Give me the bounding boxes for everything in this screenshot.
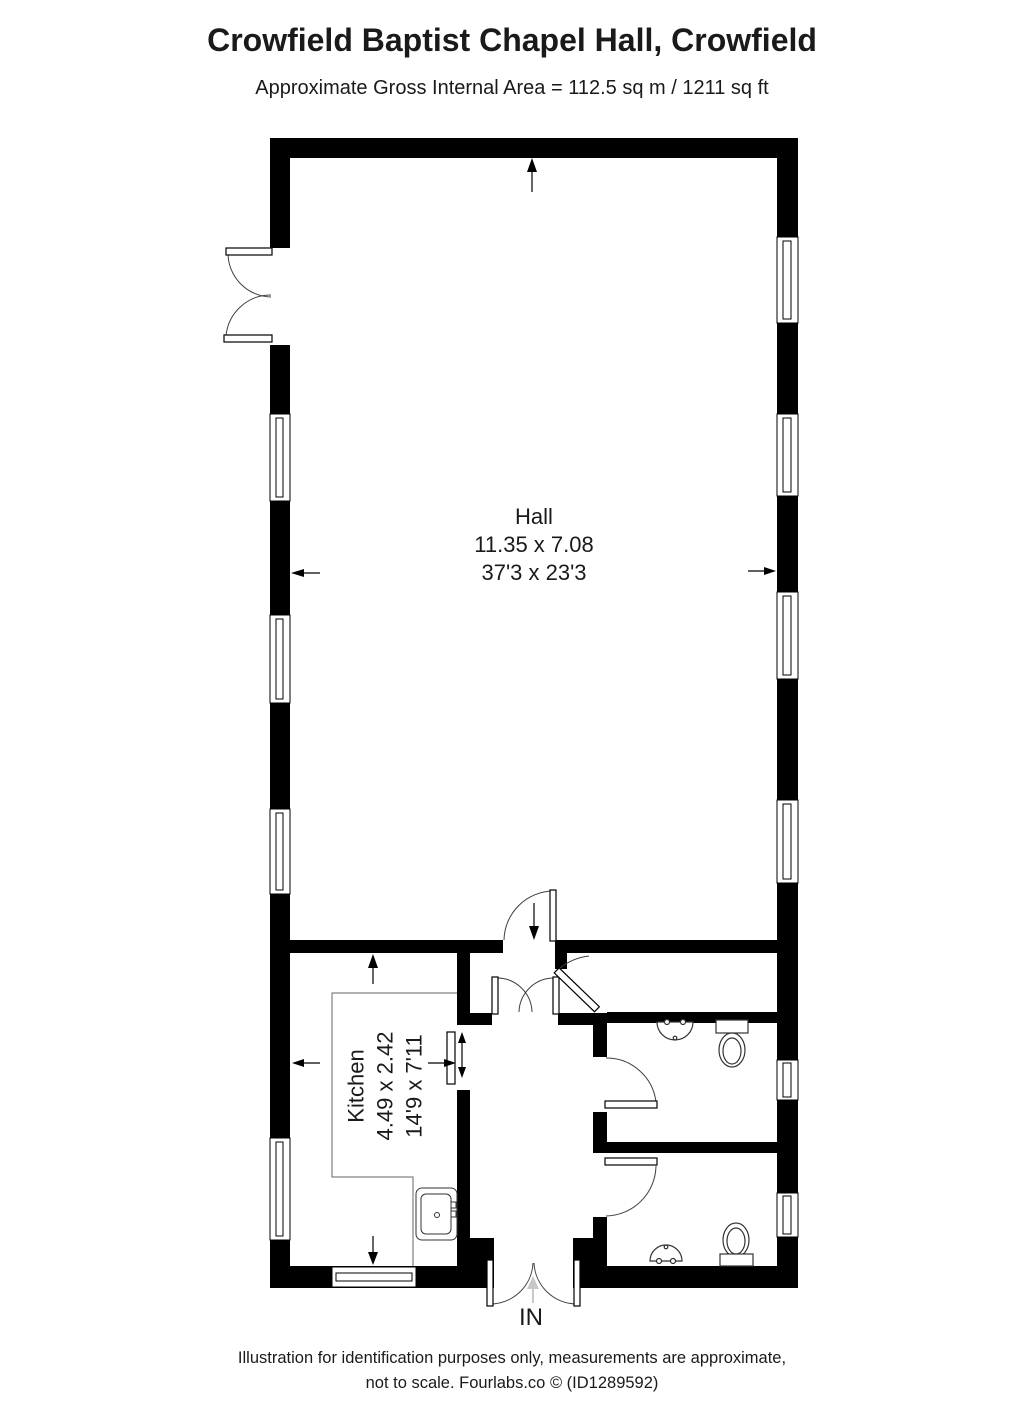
wall-vestibule-stub-left [457, 1013, 492, 1025]
window [777, 414, 798, 496]
door-swing-arc [519, 978, 553, 1012]
wall-wc-separator [593, 1142, 777, 1153]
wall-right-segment [777, 679, 798, 800]
wall-corridor-stub [555, 953, 567, 969]
door-leaf [574, 1260, 580, 1306]
hall-dimensions-imperial: 37'3 x 23'3 [434, 559, 634, 587]
vestibule-double-door [492, 977, 559, 1014]
door-leaf [550, 890, 556, 941]
door-swing-arc [606, 1058, 656, 1102]
dimension-arrow-kitchen-down [368, 1236, 378, 1265]
disclaimer-line1: Illustration for identification purposes… [0, 1346, 1024, 1371]
wall-right-segment [777, 496, 798, 592]
floorplan-drawing [0, 0, 1024, 1417]
window [270, 414, 290, 501]
kitchen-dimensions-imperial: 14'9 x 7'11 [400, 1032, 429, 1141]
hall-south-door [504, 890, 556, 941]
wall-left-segment [270, 703, 290, 809]
hatch-double-arrow [458, 1032, 466, 1078]
wall-right-segment [777, 138, 798, 237]
wall-lobby-a [593, 1013, 607, 1057]
window-wc2 [777, 1193, 798, 1237]
door-swing-arc [228, 254, 271, 297]
wall-lobby-c [593, 1217, 607, 1266]
door-leaf [487, 1260, 493, 1306]
door-leaf [553, 977, 559, 1014]
door-leaf [224, 335, 272, 342]
hall-room-label: Hall 11.35 x 7.08 37'3 x 23'3 [434, 503, 634, 587]
kitchen-sink-icon [416, 1188, 457, 1240]
window [777, 592, 798, 679]
wall-left-segment [270, 138, 290, 248]
kitchen-name: Kitchen [342, 1032, 371, 1141]
dimension-arrow-hall-left [291, 569, 320, 577]
basin-icon [657, 1020, 693, 1041]
wall-right-segment [777, 1100, 798, 1193]
window [270, 615, 290, 703]
wall-left-segment [270, 894, 290, 1138]
toilet-icon [720, 1223, 753, 1266]
wall-right-segment [777, 323, 798, 414]
page-title: Crowfield Baptist Chapel Hall, Crowfield [0, 22, 1024, 59]
door-leaf [554, 968, 599, 1012]
north-arrow [527, 158, 537, 192]
wc2-door [605, 1158, 657, 1216]
wall-kitchen-east-lower [457, 1090, 470, 1266]
wall-hall-south-right [555, 940, 777, 953]
dimension-arrow-hall-right [748, 567, 776, 575]
door-swing-arc [606, 1166, 656, 1216]
page-subtitle: Approximate Gross Internal Area = 112.5 … [0, 77, 1024, 100]
floorplan-page: Crowfield Baptist Chapel Hall, Crowfield… [0, 0, 1024, 1417]
hall-west-double-door [224, 248, 272, 342]
wall-right-segment [777, 883, 798, 1060]
door-leaf [492, 977, 498, 1014]
disclaimer-line2: not to scale. Fourlabs.co © (ID1289592) [0, 1371, 1024, 1396]
door-swing-arc [498, 978, 532, 1012]
window [777, 237, 798, 323]
window [777, 800, 798, 883]
wall-vestibule-stub-right [558, 1013, 593, 1025]
wall-left-segment [270, 501, 290, 615]
door-swing-arc [226, 295, 271, 336]
door-swing-arc [490, 1263, 533, 1304]
door-swing-arc [534, 1263, 577, 1304]
wall-wc1-top [607, 1012, 777, 1023]
dimension-arrow-hall-down [529, 903, 539, 940]
window [270, 809, 290, 894]
hall-name: Hall [434, 503, 634, 531]
door-swing-arc [504, 891, 553, 940]
wall-kitchen-east-upper [457, 953, 470, 1013]
dimension-arrow-kitchen-left [292, 1059, 320, 1067]
wall-left-segment [270, 345, 290, 414]
serving-hatch [447, 1032, 455, 1084]
wc1-door [605, 1058, 657, 1108]
wall-top [270, 138, 798, 158]
door-leaf [605, 1158, 657, 1165]
wall-hall-south-left [290, 940, 503, 953]
door-leaf [605, 1101, 657, 1108]
kitchen-dimensions-metric: 4.49 x 2.42 [371, 1032, 400, 1141]
wall-bottom-right [573, 1266, 798, 1288]
disclaimer: Illustration for identification purposes… [0, 1346, 1024, 1396]
window-wc1 [777, 1060, 798, 1100]
hall-dimensions-metric: 11.35 x 7.08 [434, 531, 634, 559]
basin-icon [650, 1245, 682, 1264]
toilet-icon [716, 1020, 748, 1067]
window-kitchen-south [332, 1267, 416, 1287]
dimension-arrow-kitchen-up [368, 954, 378, 984]
window-kitchen-west [270, 1138, 290, 1240]
door-leaf [226, 248, 272, 255]
entrance-label: IN [481, 1304, 581, 1332]
